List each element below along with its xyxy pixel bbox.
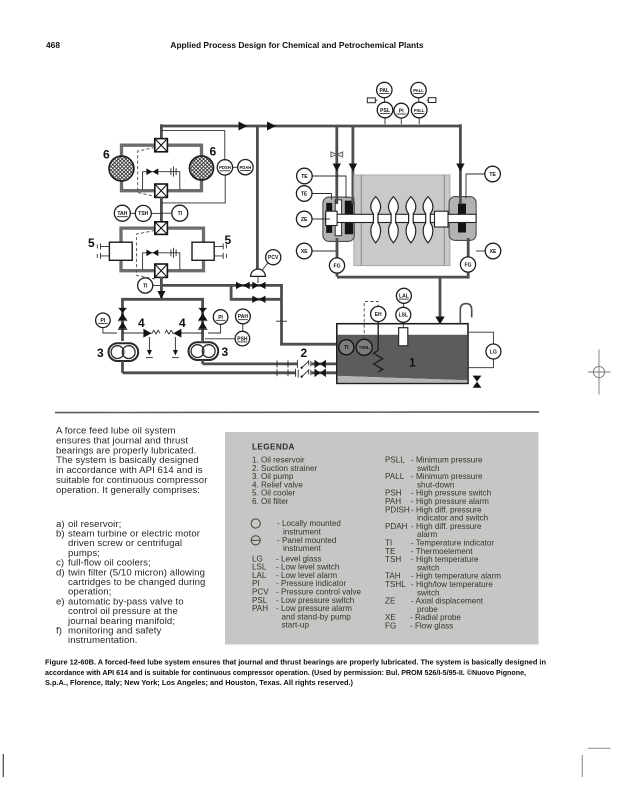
svg-text:e): e) [56, 596, 65, 607]
svg-text:Applied Process Design for Che: Applied Process Design for Chemical and … [170, 40, 424, 50]
svg-text:468: 468 [46, 40, 60, 50]
svg-text:ZE: ZE [301, 217, 308, 223]
svg-text:PDISH: PDISH [385, 505, 410, 514]
svg-text:TI: TI [178, 211, 183, 217]
svg-text:PI: PI [399, 108, 404, 114]
svg-text:PAH: PAH [252, 604, 268, 613]
svg-text:XE: XE [301, 249, 308, 255]
svg-text:PDAH: PDAH [239, 165, 251, 170]
svg-text:PDAH: PDAH [385, 522, 408, 531]
svg-text:3: 3 [222, 345, 229, 359]
svg-text:TE: TE [489, 172, 496, 178]
svg-text:- Flow glass: - Flow glass [410, 622, 453, 631]
svg-text:PDSH: PDSH [219, 165, 231, 170]
svg-text:Figure 12-60B. A forced-feed l: Figure 12-60B. A forced-feed lube system… [45, 658, 546, 667]
svg-text:operation. It generally compri: operation. It generally comprises: [56, 485, 200, 496]
svg-text:TSH: TSH [138, 211, 148, 217]
svg-text:EH: EH [375, 312, 382, 318]
svg-text:TAH: TAH [117, 211, 127, 217]
svg-text:PALL: PALL [385, 472, 405, 481]
svg-text:LG: LG [490, 349, 497, 355]
svg-text:S.p.A., Florence, Italy; New Y: S.p.A., Florence, Italy; New York; Los A… [45, 678, 353, 687]
svg-text:FG: FG [385, 622, 396, 631]
svg-text:FG: FG [465, 262, 472, 268]
svg-text:6. Oil filter: 6. Oil filter [252, 497, 289, 506]
svg-text:5: 5 [225, 233, 232, 247]
svg-text:LSL: LSL [399, 313, 408, 319]
svg-text:TI: TI [143, 283, 148, 289]
svg-text:FG: FG [334, 263, 341, 269]
svg-text:6: 6 [210, 145, 217, 159]
svg-text:instrument: instrument [283, 544, 322, 553]
svg-text:5: 5 [88, 236, 95, 250]
svg-text:PAL: PAL [379, 88, 389, 94]
svg-text:d): d) [56, 567, 65, 578]
svg-text:PSLL: PSLL [385, 456, 405, 465]
svg-text:XE: XE [490, 249, 497, 255]
svg-text:LEGENDA: LEGENDA [252, 443, 295, 452]
svg-text:b): b) [56, 529, 65, 540]
svg-text:4: 4 [179, 316, 186, 330]
svg-text:TI: TI [344, 345, 349, 351]
svg-text:2: 2 [301, 346, 308, 360]
svg-text:TSH: TSH [385, 555, 401, 564]
svg-text:TSHL: TSHL [385, 580, 406, 589]
svg-text:PALL: PALL [413, 88, 424, 93]
svg-text:PSLL: PSLL [414, 108, 425, 113]
svg-text:TSHL: TSHL [359, 345, 370, 350]
svg-text:PSL: PSL [380, 108, 390, 114]
svg-text:PCV: PCV [268, 255, 279, 261]
svg-text:ZE: ZE [385, 597, 396, 606]
svg-text:1: 1 [409, 356, 416, 370]
svg-text:TE: TE [301, 174, 308, 180]
svg-text:4: 4 [138, 316, 145, 330]
svg-text:3: 3 [97, 346, 104, 360]
svg-text:accordance with API 614 and is: accordance with API 614 and is suitable … [45, 668, 526, 677]
svg-text:f): f) [56, 626, 62, 637]
svg-text:instrumentation.: instrumentation. [68, 635, 138, 646]
svg-text:6: 6 [103, 148, 110, 162]
svg-text:start-up: start-up [282, 621, 310, 630]
svg-text:TE: TE [301, 191, 308, 197]
